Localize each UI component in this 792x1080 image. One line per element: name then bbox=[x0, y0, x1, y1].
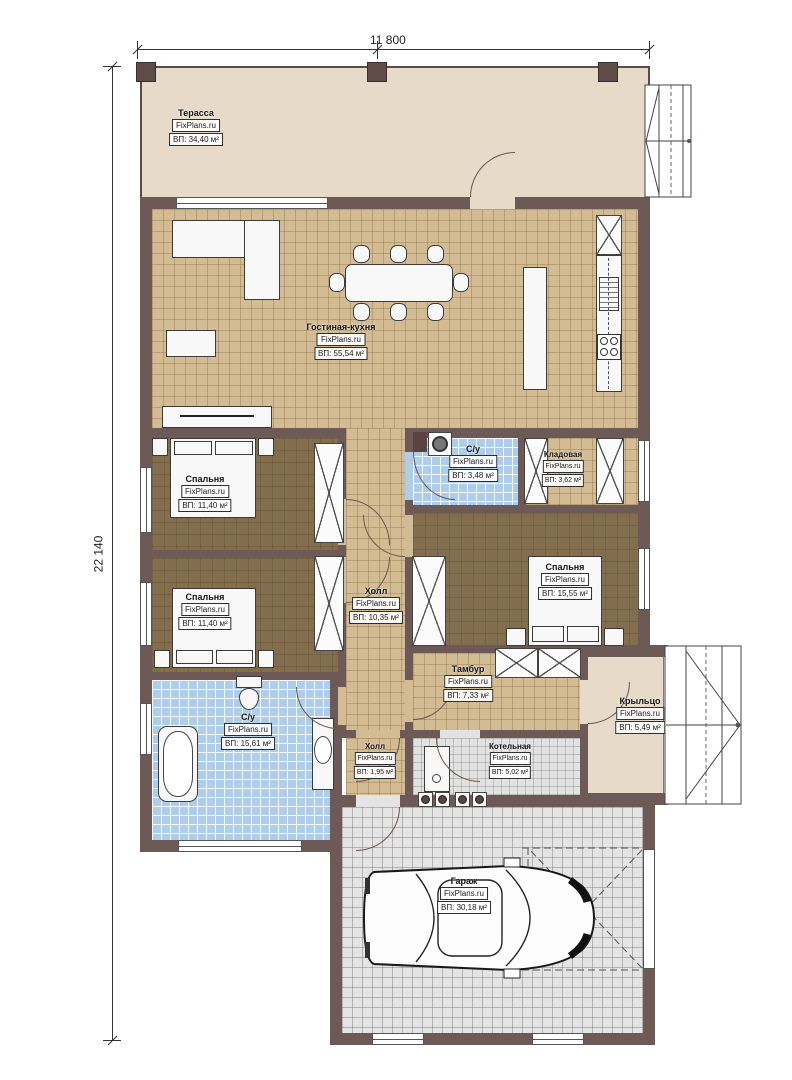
brand-box: FixPlans.ru bbox=[317, 333, 365, 346]
tv-icon bbox=[180, 415, 254, 417]
room-label-bathroom-small: С/у FixPlans.ru ВП: 3,48 м² bbox=[448, 444, 498, 482]
area-box: ВП: 3,48 м² bbox=[448, 469, 498, 482]
door-gap-garage bbox=[356, 795, 400, 807]
room-label-tambour: Тамбур FixPlans.ru ВП: 7,33 м² bbox=[443, 664, 493, 702]
window-bathroom-big-south bbox=[178, 840, 302, 852]
brand-box: FixPlans.ru bbox=[449, 455, 497, 468]
brand-box: FixPlans.ru bbox=[172, 119, 220, 132]
flue-icon bbox=[418, 792, 433, 807]
room-name: С/у bbox=[241, 712, 255, 722]
floor-plan: 11 800 22 140 bbox=[0, 0, 792, 1080]
nightstand-icon bbox=[604, 628, 624, 646]
room-label-bedroom3: Спальня FixPlans.ru ВП: 15,55 м² bbox=[538, 562, 592, 600]
vent-shaft bbox=[413, 432, 427, 452]
room-label-bedroom1: Спальня FixPlans.ru ВП: 11,40 м² bbox=[178, 474, 231, 512]
dimension-line-top bbox=[137, 49, 650, 50]
brand-box: FixPlans.ru bbox=[440, 887, 488, 900]
room-label-bedroom2: Спальня FixPlans.ru ВП: 11,40 м² bbox=[178, 592, 231, 630]
chair-icon bbox=[353, 303, 370, 321]
pillow-icon bbox=[174, 441, 212, 455]
window-bedroom1 bbox=[140, 467, 152, 533]
tv-stand-icon bbox=[162, 406, 272, 428]
pillar bbox=[367, 62, 387, 82]
dimension-height: 22 140 bbox=[91, 536, 105, 573]
room-label-terrace: Терасса FixPlans.ru ВП: 34,40 м² bbox=[169, 108, 223, 146]
brand-box: FixPlans.ru bbox=[181, 603, 229, 616]
wall bbox=[405, 738, 413, 803]
room-label-storage: Кладовая FixPlans.ru ВП: 3,62 м² bbox=[542, 450, 584, 487]
chair-icon bbox=[427, 245, 444, 263]
window-bathroom-big bbox=[140, 703, 152, 755]
area-box: ВП: 10,35 м² bbox=[349, 611, 403, 624]
nightstand-icon bbox=[506, 628, 526, 646]
room-name: Холл bbox=[365, 586, 388, 596]
brand-box: FixPlans.ru bbox=[444, 675, 492, 688]
kitchen-counter-icon bbox=[596, 255, 622, 392]
room-name: Спальня bbox=[186, 592, 225, 602]
window-bedroom2 bbox=[140, 582, 152, 646]
area-box: ВП: 55,54 м² bbox=[314, 347, 368, 360]
area-box: ВП: 30,18 м² bbox=[437, 901, 491, 914]
wardrobe-icon bbox=[495, 648, 538, 678]
wall bbox=[330, 795, 342, 1045]
brand-box: FixPlans.ru bbox=[181, 485, 229, 498]
door-gap-tambour bbox=[405, 680, 413, 722]
room-label-hall: Холл FixPlans.ru ВП: 10,35 м² bbox=[349, 586, 403, 624]
area-box: ВП: 34,40 м² bbox=[169, 133, 223, 146]
chair-icon bbox=[390, 245, 407, 263]
area-box: ВП: 1,95 м² bbox=[354, 766, 396, 779]
kitchen-island-icon bbox=[523, 267, 547, 390]
nightstand-icon bbox=[152, 438, 168, 456]
pillar bbox=[598, 62, 618, 82]
room-floor-bedroom3 bbox=[413, 513, 638, 645]
door-gap-boiler bbox=[440, 730, 480, 738]
wardrobe-icon bbox=[596, 438, 624, 504]
wardrobe-icon bbox=[412, 556, 446, 646]
area-box: ВП: 5,49 м² bbox=[615, 721, 665, 734]
room-name: Спальня bbox=[546, 562, 585, 572]
nightstand-icon bbox=[258, 650, 274, 668]
window-storage bbox=[638, 440, 650, 502]
dining-table-icon bbox=[345, 264, 453, 302]
wall bbox=[150, 428, 346, 438]
flue-icon bbox=[435, 792, 450, 807]
door-gap-bathroom-small bbox=[405, 452, 413, 500]
area-box: ВП: 5,02 м² bbox=[489, 766, 531, 779]
door-gap-hall-small bbox=[356, 730, 400, 738]
door-gap-bathroom-big bbox=[338, 687, 346, 725]
room-name: Кладовая bbox=[544, 450, 582, 459]
door-gap-terrace bbox=[470, 197, 515, 209]
room-label-boiler: Котельная FixPlans.ru ВП: 5,02 м² bbox=[489, 742, 531, 779]
nightstand-icon bbox=[258, 438, 274, 456]
chair-icon bbox=[390, 303, 407, 321]
brand-box: FixPlans.ru bbox=[224, 723, 272, 736]
pillow-icon bbox=[532, 626, 564, 642]
room-name: С/у bbox=[466, 444, 480, 454]
room-name: Холл bbox=[365, 742, 385, 751]
counter-centerline bbox=[608, 258, 609, 389]
window-bedroom3 bbox=[638, 548, 650, 610]
pillow-icon bbox=[216, 650, 253, 664]
pillow-icon bbox=[215, 441, 253, 455]
area-box: ВП: 15,61 м² bbox=[221, 737, 275, 750]
tall-cabinet-icon bbox=[596, 215, 622, 255]
room-name: Котельная bbox=[489, 742, 531, 751]
room-label-garage: Гараж FixPlans.ru ВП: 30,18 м² bbox=[437, 876, 491, 914]
sofa-chaise-icon bbox=[244, 220, 280, 300]
stove-icon bbox=[597, 334, 621, 360]
car-icon bbox=[358, 856, 598, 980]
brand-box: FixPlans.ru bbox=[541, 573, 589, 586]
pillar bbox=[136, 62, 156, 82]
wardrobe-icon bbox=[314, 556, 344, 651]
area-box: ВП: 7,33 м² bbox=[443, 689, 493, 702]
room-label-porch: Крыльцо FixPlans.ru ВП: 5,49 м² bbox=[615, 696, 665, 734]
wardrobe-icon bbox=[314, 443, 344, 543]
pillow-icon bbox=[176, 650, 213, 664]
room-name: Тамбур bbox=[452, 664, 485, 674]
dimension-line-left bbox=[112, 66, 113, 1040]
stairs-icon bbox=[664, 645, 742, 805]
dimension-width: 11 800 bbox=[370, 33, 406, 47]
oven-icon bbox=[599, 277, 619, 311]
nightstand-icon bbox=[154, 650, 170, 668]
boiler-dial bbox=[432, 774, 441, 783]
room-label-living: Гостиная-кухня FixPlans.ru ВП: 55,54 м² bbox=[307, 322, 376, 360]
window-garage-2 bbox=[532, 1033, 584, 1045]
area-box: ВП: 11,40 м² bbox=[178, 617, 231, 630]
brand-box: FixPlans.ru bbox=[352, 597, 400, 610]
window-living bbox=[176, 197, 328, 209]
area-box: ВП: 15,55 м² bbox=[538, 587, 592, 600]
chair-icon bbox=[427, 303, 444, 321]
coffee-table-icon bbox=[166, 330, 216, 357]
room-label-hall-small: Холл FixPlans.ru ВП: 1,95 м² bbox=[354, 742, 396, 779]
flue-icon bbox=[472, 792, 487, 807]
flue-icon bbox=[455, 792, 470, 807]
wall bbox=[580, 730, 588, 803]
brand-box: FixPlans.ru bbox=[354, 752, 395, 765]
brand-box: FixPlans.ru bbox=[542, 460, 583, 473]
room-name: Терасса bbox=[178, 108, 214, 118]
wardrobe-icon bbox=[538, 648, 581, 678]
door-gap-bedroom3 bbox=[405, 515, 413, 557]
sink-icon bbox=[314, 736, 332, 764]
pillow-icon bbox=[567, 626, 599, 642]
room-name: Гостиная-кухня bbox=[307, 322, 376, 332]
room-name: Крыльцо bbox=[620, 696, 661, 706]
area-box: ВП: 11,40 м² bbox=[178, 499, 231, 512]
room-label-bathroom-big: С/у FixPlans.ru ВП: 15,61 м² bbox=[221, 712, 275, 750]
stairs-icon bbox=[644, 84, 692, 198]
chair-icon bbox=[353, 245, 370, 263]
chair-icon bbox=[453, 273, 469, 292]
area-box: ВП: 3,62 м² bbox=[542, 474, 584, 487]
bathtub-basin bbox=[163, 731, 193, 797]
chair-icon bbox=[329, 273, 345, 292]
room-name: Спальня bbox=[186, 474, 225, 484]
room-name: Гараж bbox=[451, 876, 478, 886]
window-garage-1 bbox=[372, 1033, 424, 1045]
door-gap-porch bbox=[580, 680, 588, 724]
brand-box: FixPlans.ru bbox=[489, 752, 530, 765]
toilet-tank-icon bbox=[236, 676, 262, 688]
brand-box: FixPlans.ru bbox=[616, 707, 664, 720]
